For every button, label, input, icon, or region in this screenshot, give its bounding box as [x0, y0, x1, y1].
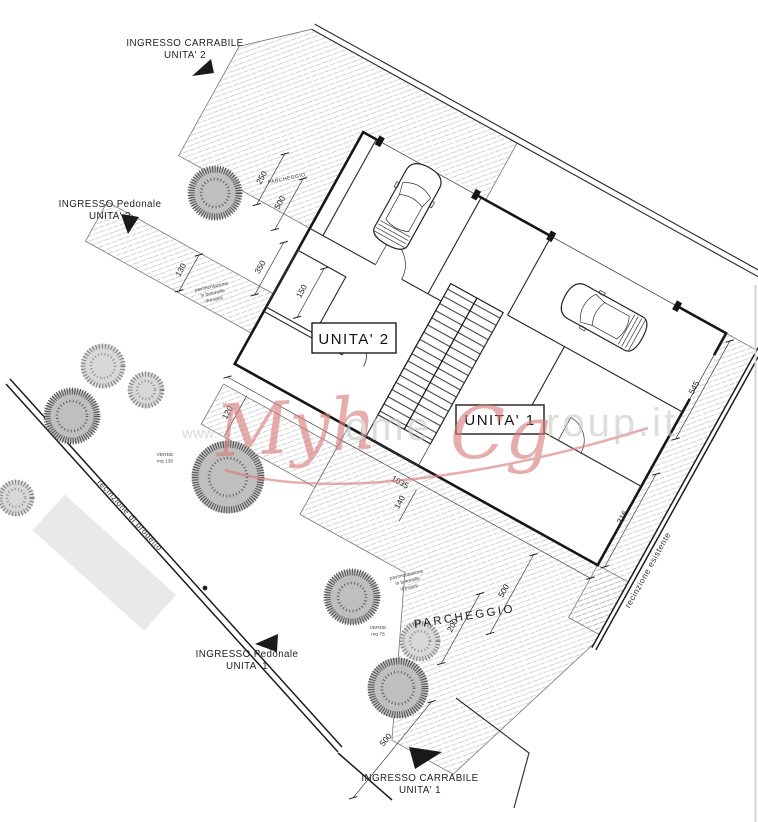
- tree: [81, 344, 125, 388]
- svg-text:UNITA' 2: UNITA' 2: [318, 331, 389, 348]
- arrow-carrabile-unita2: [192, 59, 214, 76]
- label-carrabile-unita2-l2: UNITA' 2: [164, 50, 206, 61]
- watermark-script-2: Cg: [450, 391, 551, 475]
- tree: [189, 167, 241, 219]
- tree: [0, 480, 34, 516]
- svg-text:VERDE: VERDE: [157, 452, 175, 458]
- gray-paving-blob: [33, 495, 177, 631]
- survey-dot: [203, 586, 208, 591]
- svg-text:mq 135: mq 135: [157, 459, 174, 465]
- svg-text:mq 75: mq 75: [371, 632, 385, 638]
- label-pedonale-unita2-l1: INGRESSO Pedonale: [59, 199, 162, 210]
- svg-text:500: 500: [378, 731, 394, 748]
- site-plan-page: 250 500 350 150 130 545: [0, 0, 758, 822]
- label-carrabile-unita1-l2: UNITA' 1: [399, 785, 441, 796]
- tree: [325, 570, 379, 624]
- tree: [45, 389, 99, 443]
- label-pedonale-unita2-l2: UNITA' 2: [89, 211, 131, 222]
- label-carrabile-unita1-l1: INGRESSO CARRABILE: [361, 773, 478, 784]
- watermark-gray-1: ome: [345, 405, 432, 449]
- tree: [128, 372, 164, 408]
- unit2-label-box: UNITA' 2: [312, 323, 396, 353]
- svg-text:VERDE: VERDE: [370, 625, 388, 631]
- verde-bottom-label: VERDE mq 75: [370, 625, 388, 638]
- svg-text:350: 350: [253, 259, 268, 276]
- site-plan-svg: 250 500 350 150 130 545: [0, 0, 758, 822]
- watermark-www: www.: [181, 425, 218, 442]
- verde-left-label: VERDE mq 135: [157, 452, 175, 465]
- tree: [368, 658, 428, 718]
- label-carrabile-unita2-l1: INGRESSO CARRABILE: [126, 38, 243, 49]
- label-pedonale-unita1-l2: UNITA' 1: [226, 661, 268, 672]
- label-pedonale-unita1-l1: INGRESSO Pedonale: [196, 649, 299, 660]
